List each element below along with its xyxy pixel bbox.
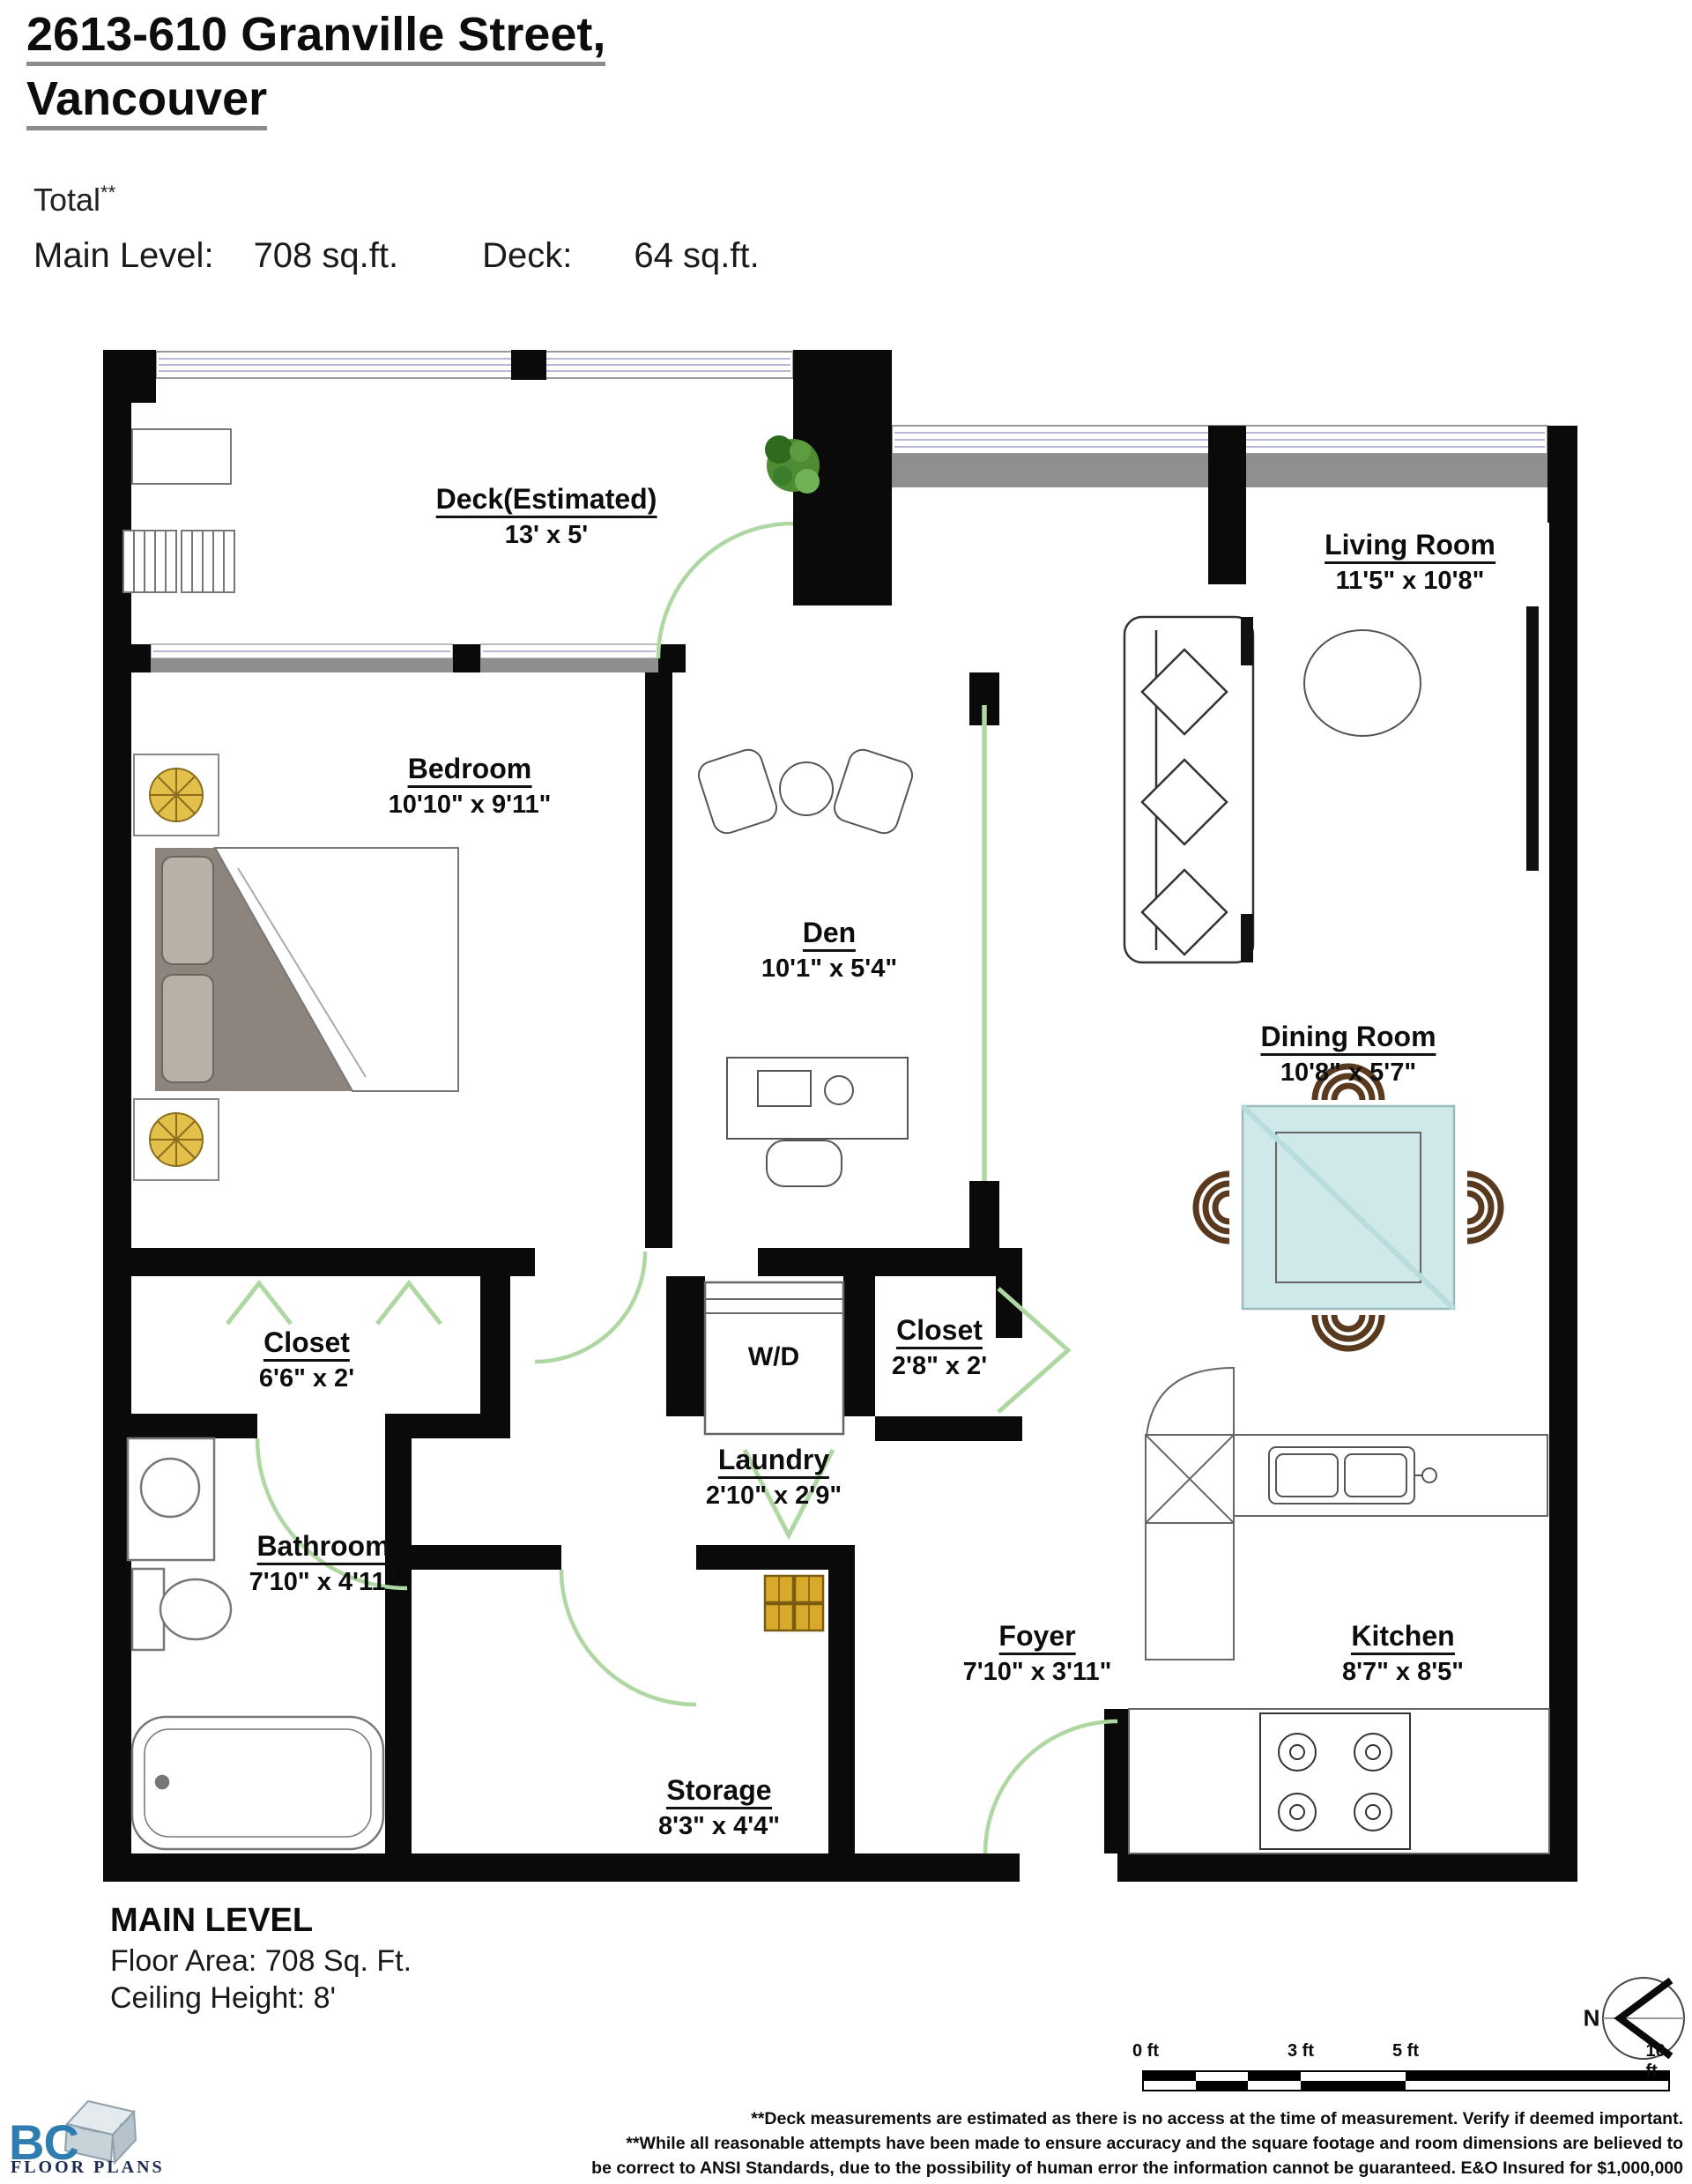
dining-furniture (1196, 1066, 1501, 1348)
room-name: Bedroom (408, 754, 531, 788)
living-room-furniture (1124, 606, 1539, 962)
floor-plan-page: 2613-610 Granville Street, Vancouver Tot… (0, 0, 1692, 2184)
disclaimer-line2: **While all reasonable attempts have bee… (361, 2131, 1683, 2156)
room-dims: 8'7" x 8'5" (1342, 1658, 1464, 1687)
room-label-closet-small: Closet 2'8" x 2' (892, 1316, 987, 1381)
room-name: Bathroom (256, 1532, 390, 1565)
room-label-laundry: Laundry 2'10" x 2'9" (706, 1445, 842, 1511)
logo-floor-plans-text: FLOOR PLANS (11, 2158, 165, 2178)
room-name: Foyer (998, 1622, 1075, 1655)
room-dims: 10'8" x 5'7" (1260, 1059, 1436, 1088)
disclaimer: **Deck measurements are estimated as the… (361, 2106, 1683, 2180)
room-dims: 10'10" x 9'11" (389, 791, 552, 820)
stove-icon (1260, 1713, 1410, 1849)
room-dims: 6'6" x 2' (259, 1364, 354, 1393)
room-name: Storage (666, 1776, 771, 1809)
room-dims: 13' x 5' (436, 521, 657, 550)
kitchen-counters (1129, 1368, 1549, 1853)
room-label-dining-room: Dining Room 10'8" x 5'7" (1260, 1022, 1436, 1088)
disclaimer-line3: be correct to ANSI Standards, due to the… (361, 2156, 1683, 2180)
tv-icon (1526, 606, 1539, 871)
room-dims: 7'10" x 4'11" (249, 1568, 398, 1597)
room-label-closet: Closet 6'6" x 2' (259, 1328, 354, 1393)
disclaimer-line1: **Deck measurements are estimated as the… (361, 2106, 1683, 2131)
kitchen-sink-icon (1269, 1447, 1436, 1504)
room-dims: 8'3" x 4'4" (658, 1812, 780, 1841)
north-label: N (1584, 2005, 1600, 2032)
room-name: Laundry (718, 1445, 829, 1479)
sink-icon (141, 1459, 199, 1517)
toilet-icon (160, 1579, 231, 1639)
room-label-den: Den 10'1" x 5'4" (761, 918, 897, 984)
room-name: Den (803, 918, 856, 952)
room-dims: 2'8" x 2' (892, 1352, 987, 1381)
storage-boxes-icon (765, 1576, 823, 1631)
room-name: Living Room (1325, 531, 1495, 564)
room-label-foyer: Foyer 7'10" x 3'11" (963, 1622, 1112, 1687)
bathroom-fixtures (128, 1438, 383, 1849)
scale-tick-5ft: 5 ft (1392, 2041, 1419, 2061)
room-dims: 10'1" x 5'4" (761, 955, 897, 984)
room-label-deck: Deck(Estimated) 13' x 5' (436, 485, 657, 550)
scale-tick-0ft: 0 ft (1132, 2041, 1159, 2061)
scale-bar (1143, 2071, 1669, 2091)
scale-tick-10ft: 10 ft (1646, 2041, 1677, 2082)
deck-furniture (123, 429, 234, 592)
room-name: Deck(Estimated) (436, 485, 657, 518)
scale-tick-3ft: 3 ft (1288, 2041, 1314, 2061)
floor-plan-drawing (0, 0, 1692, 2184)
room-label-living-room: Living Room 11'5" x 10'8" (1325, 531, 1495, 596)
room-label-bedroom: Bedroom 10'10" x 9'11" (389, 754, 552, 820)
room-label-storage: Storage 8'3" x 4'4" (658, 1776, 780, 1841)
washer-dryer-label: W/D (748, 1342, 799, 1372)
room-label-bathroom: Bathroom 7'10" x 4'11" (249, 1532, 398, 1597)
room-label-kitchen: Kitchen 8'7" x 8'5" (1342, 1622, 1464, 1687)
room-dims: 11'5" x 10'8" (1325, 567, 1495, 596)
room-name: Kitchen (1351, 1622, 1454, 1655)
room-name: Closet (896, 1316, 983, 1349)
room-name: Closet (263, 1328, 350, 1362)
room-name: Dining Room (1260, 1022, 1436, 1056)
room-dims: 2'10" x 2'9" (706, 1482, 842, 1511)
room-dims: 7'10" x 3'11" (963, 1658, 1112, 1687)
toilet-tank (132, 1569, 164, 1650)
